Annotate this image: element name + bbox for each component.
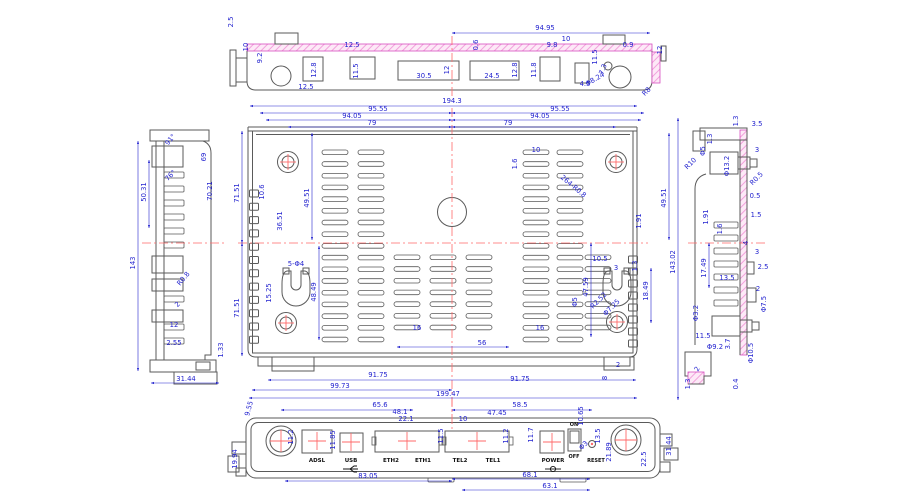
dim-label: 1.33 [217, 342, 225, 357]
dim-label: Φ5 [571, 297, 579, 307]
dim-label: 9.8 [547, 41, 558, 49]
dim-label: 11.7 [527, 427, 535, 442]
dim-label: 21.89 [605, 442, 613, 461]
dim-label: 91.75 [510, 375, 529, 383]
port-label-power: POWER [542, 458, 566, 464]
reset-label: RESET [587, 458, 605, 464]
left-profile-view [142, 130, 225, 384]
dim-label: 69 [200, 153, 208, 162]
dim-label: 12.5 [344, 41, 359, 49]
dim-label: 12 [443, 66, 451, 75]
dim-label: 264-R0.8 [559, 173, 588, 199]
dim-label: 5-Φ4 [288, 260, 304, 268]
dim-label: 91° [164, 133, 178, 147]
dim-label: 95.55 [368, 105, 387, 113]
dim-label: 12.5 [298, 83, 313, 91]
dim-label: 83.05 [358, 472, 377, 480]
dim-label: Φ13.2 [723, 156, 731, 176]
dim-label: 3.7 [724, 339, 732, 350]
dim-label: 71.51 [233, 183, 241, 202]
dim-label: 12 [656, 46, 664, 55]
dim-label: 79 [368, 119, 377, 127]
dim-label: 1.3 [706, 134, 714, 145]
dim-label: 3.5 [752, 120, 763, 128]
dim-label: Φ8.24 [584, 71, 606, 88]
cad-canvas: 2.5109.294.9512.512.812.511.530.51224.51… [0, 0, 900, 500]
dim-label: 11.2 [287, 429, 295, 444]
dim-label: 31.44 [665, 436, 673, 455]
dim-label: 10.5 [592, 255, 607, 263]
dim-label: 194.3 [442, 97, 461, 105]
switch-on-label: ON [570, 422, 578, 428]
dim-label: Φ10.5 [747, 343, 755, 363]
plan-dims: 194.395.5595.5594.0594.05797971.5171.511… [233, 97, 678, 400]
dim-label: 70.21 [206, 181, 214, 200]
dim-label: 1.91 [635, 213, 643, 228]
dim-label: 49.51 [303, 188, 311, 207]
dim-label: 143 [129, 257, 137, 270]
dim-label: 68.1 [522, 471, 537, 479]
top-edge-dims: 2.5109.294.9512.512.812.511.530.51224.51… [227, 17, 664, 98]
dim-label: Φ7.5 [760, 296, 768, 312]
power-plug-icon [545, 466, 561, 471]
switch-off-label: OFF [568, 454, 579, 460]
dim-label: 94.95 [535, 24, 554, 32]
dim-label: 11.8 [530, 62, 538, 77]
dim-label: 1.3 [684, 379, 692, 390]
port-label-adsl: ADSL [309, 458, 326, 464]
dim-label: 10.6 [258, 184, 266, 199]
dim-label: 2 [756, 285, 760, 293]
dim-label: 19.94 [231, 449, 239, 468]
front-panel-labels: ADSLUSBETH2ETH1TEL2TEL1POWERONOFFRESET [309, 422, 606, 464]
dim-label: Φ5 [699, 146, 707, 156]
dim-label: 12.8 [511, 62, 519, 77]
port-label-eth1: ETH1 [415, 458, 431, 464]
port-label-usb: USB [345, 458, 358, 464]
dim-label: 11.5 [437, 428, 445, 443]
dim-label: 48.49 [310, 282, 318, 301]
dim-label: 3 [755, 146, 759, 154]
dim-label: 11.5 [695, 332, 710, 340]
dim-label: Φ9.2 [707, 343, 723, 351]
dim-label: 47.59 [582, 277, 590, 296]
dim-label: R0.5 [748, 170, 765, 187]
dim-label: 8 [601, 376, 609, 380]
dim-label: 71.51 [233, 298, 241, 317]
dim-label: 2.5 [758, 263, 769, 271]
dim-label: 0.9 [623, 41, 634, 49]
port-label-tel1: TEL1 [486, 458, 501, 464]
dim-label: 3 [614, 264, 618, 272]
dim-label: R8 [641, 86, 653, 98]
dim-label: 22.1 [398, 415, 413, 423]
dim-label: 3 [755, 248, 759, 256]
dim-label: 47.45 [487, 409, 506, 417]
dim-label: 9.55 [243, 400, 255, 417]
dim-label: 11.5 [352, 63, 360, 78]
dim-label: 58.5 [512, 401, 527, 409]
dim-label: 65.6 [372, 401, 387, 409]
dim-label: 199.47 [436, 390, 460, 398]
dim-label: 16 [413, 324, 422, 332]
dim-label: 49.51 [660, 188, 668, 207]
dim-label: 10 [242, 43, 250, 52]
dim-label: 2.55 [166, 339, 181, 347]
dim-label: 50.31 [140, 182, 148, 201]
dim-label: 16 [536, 324, 545, 332]
dim-label: 2 [616, 361, 620, 369]
dim-label: 1.5 [751, 211, 762, 219]
dim-label: 12.8 [310, 62, 318, 77]
dim-label: 13.5 [594, 428, 602, 443]
dim-label: 1.91 [702, 209, 710, 224]
dim-label: 13.5 [719, 274, 734, 282]
dim-label: 9.2 [256, 53, 264, 64]
dim-label: 36.51 [276, 211, 284, 230]
dim-label: 2.5 [227, 17, 235, 28]
dim-label: 1.3 [732, 116, 740, 127]
dim-label: 30.5 [416, 72, 431, 80]
dim-label: 22.5 [640, 451, 648, 466]
right-profile-dims: 1.33.51.3Φ5R10Φ13.23R0.50.51.911.51.6431… [683, 116, 768, 390]
port-label-eth2: ETH2 [383, 458, 399, 464]
dim-label: 91.75 [368, 371, 387, 379]
dim-label: 79 [504, 119, 513, 127]
front-panel-view [228, 398, 678, 482]
dim-label: Φ3.2 [692, 305, 700, 321]
dim-label: 99.73 [330, 382, 349, 390]
dim-label: 10 [459, 415, 468, 423]
dim-label: 0.5 [750, 192, 761, 200]
dim-label: 11.2 [502, 428, 510, 443]
dim-label: 94.05 [530, 112, 549, 120]
dim-label: 11.5 [591, 49, 599, 64]
port-label-tel2: TEL2 [453, 458, 468, 464]
dim-label: 1.3 [631, 261, 639, 272]
dim-label: 10 [532, 146, 541, 154]
dim-label: 18.49 [642, 281, 650, 300]
dim-label: 76° [163, 168, 177, 182]
dim-label: 24.5 [484, 72, 499, 80]
dim-label: 63.1 [542, 482, 557, 490]
dim-label: 0.6 [472, 40, 480, 51]
dim-label: 143.02 [669, 250, 677, 274]
dim-label: 95.55 [550, 105, 569, 113]
dim-label: 56 [478, 339, 487, 347]
dim-label: 4 [742, 241, 750, 245]
dim-label: 11.85 [329, 430, 337, 449]
dim-label: 12 [170, 321, 179, 329]
front-panel-dims: 9.5565.648.122.11058.547.4510.6511.211.8… [231, 400, 673, 490]
engineering-drawing-svg: 2.5109.294.9512.512.812.511.530.51224.51… [0, 0, 900, 500]
dim-label: Φ7.25 [602, 298, 622, 318]
dim-label: 1.6 [716, 224, 724, 235]
dim-label: 0.4 [732, 379, 740, 390]
dim-label: 15.25 [265, 283, 273, 302]
dim-label: 10 [562, 35, 571, 43]
dim-label: 1.6 [511, 159, 519, 170]
dim-label: 31.44 [176, 375, 195, 383]
dim-label: 17.49 [700, 258, 708, 277]
dim-label: 2 [173, 300, 182, 309]
dim-label: 94.05 [342, 112, 361, 120]
dim-label: R10 [683, 156, 698, 171]
